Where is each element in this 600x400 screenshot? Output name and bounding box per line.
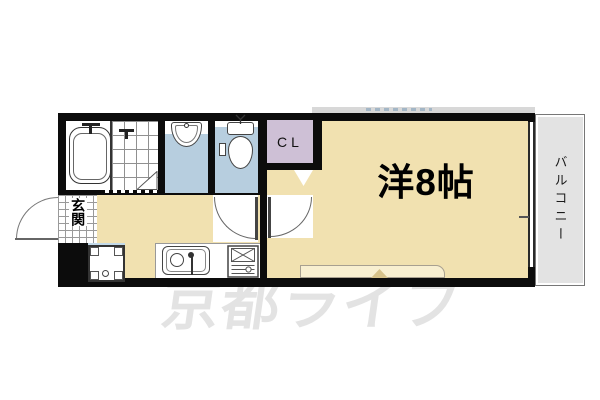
- washbasin-faucet-icon: [184, 123, 189, 128]
- pan-corner-tab: [90, 247, 99, 256]
- kitchen-sink-drain: [170, 253, 184, 267]
- bathroom-corner-notch: [137, 171, 158, 190]
- toilet-door-leaf: [255, 197, 258, 240]
- balcony: バルコニー: [535, 114, 585, 286]
- floorplan-canvas: 京都ライフ バルコニー CL 洋8帖: [0, 0, 600, 400]
- main-room-label: 洋8帖: [336, 163, 516, 204]
- bathroom-folding-door: [105, 190, 157, 193]
- entrance-label: 玄関: [69, 198, 87, 226]
- kitchen-faucet-head: [188, 252, 194, 258]
- kitchen-faucet-icon: [191, 255, 193, 275]
- main-room-door-leaf: [268, 197, 271, 238]
- bathtub-faucet-stem: [89, 126, 92, 134]
- entrance-door-arc: [16, 197, 58, 239]
- pan-corner-tab: [114, 271, 123, 280]
- pan-drain: [102, 270, 109, 277]
- balcony-window: [528, 122, 535, 267]
- toilet-faucet-icon: [234, 114, 247, 124]
- balcony-label: バルコニー: [551, 155, 570, 245]
- shower-faucet-stem: [125, 132, 128, 139]
- pan-corner-tab: [90, 271, 99, 280]
- balcony-window-tick: [519, 216, 529, 218]
- pan-corner-tab: [114, 247, 123, 256]
- gas-stove: [227, 245, 259, 278]
- closet-label: CL: [277, 134, 303, 150]
- corridor-strip-dashes: [366, 108, 432, 111]
- closet: CL: [267, 120, 313, 163]
- bottom-window-sill: [300, 265, 445, 278]
- bathtub-inner-rim: [73, 133, 107, 180]
- toilet-paper-holder: [219, 143, 226, 156]
- entrance-door-leaf: [15, 238, 59, 240]
